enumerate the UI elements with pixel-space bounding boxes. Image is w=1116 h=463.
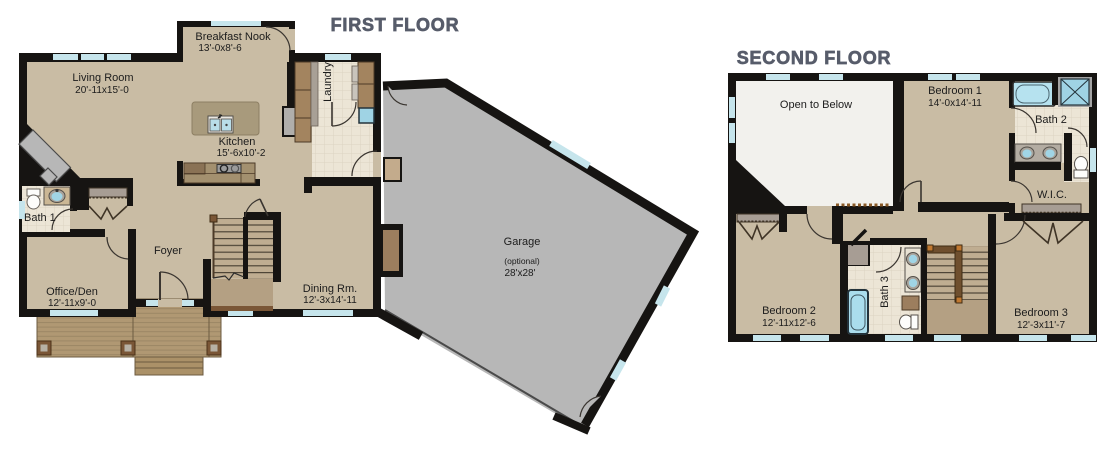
svg-text:Foyer: Foyer xyxy=(154,245,182,257)
svg-text:Garage: Garage xyxy=(504,236,541,248)
svg-text:Bath 3: Bath 3 xyxy=(879,276,891,308)
svg-text:12'-3x14'-11: 12'-3x14'-11 xyxy=(303,295,357,306)
svg-text:Bath 1: Bath 1 xyxy=(24,212,56,224)
svg-text:13'-0x8'-6: 13'-0x8'-6 xyxy=(198,43,242,54)
svg-text:(optional): (optional) xyxy=(504,256,540,266)
svg-text:Dining Rm.: Dining Rm. xyxy=(303,283,357,295)
svg-text:15'-6x10'-2: 15'-6x10'-2 xyxy=(217,148,266,159)
svg-text:Kitchen: Kitchen xyxy=(219,136,256,148)
svg-text:12'-3x11'-7: 12'-3x11'-7 xyxy=(1017,320,1066,331)
svg-text:SECOND FLOOR: SECOND FLOOR xyxy=(737,48,892,68)
svg-text:FIRST FLOOR: FIRST FLOOR xyxy=(331,15,460,35)
svg-text:Open to Below: Open to Below xyxy=(780,99,852,111)
svg-text:Breakfast Nook: Breakfast Nook xyxy=(195,31,271,43)
svg-text:Bedroom 1: Bedroom 1 xyxy=(928,85,982,97)
svg-text:14'-0x14'-11: 14'-0x14'-11 xyxy=(928,98,982,109)
svg-text:Bedroom 3: Bedroom 3 xyxy=(1014,307,1068,319)
svg-text:28'x28': 28'x28' xyxy=(504,268,535,279)
svg-text:W.I.C.: W.I.C. xyxy=(1037,189,1067,201)
svg-text:Laundry: Laundry xyxy=(322,62,334,102)
svg-text:Bedroom 2: Bedroom 2 xyxy=(762,305,816,317)
svg-text:20'-11x15'-0: 20'-11x15'-0 xyxy=(75,85,129,96)
svg-text:12'-11x9'-0: 12'-11x9'-0 xyxy=(48,298,97,309)
svg-text:Office/Den: Office/Den xyxy=(46,286,98,298)
svg-text:Living Room: Living Room xyxy=(72,72,133,84)
svg-text:12'-11x12'-6: 12'-11x12'-6 xyxy=(762,318,816,329)
svg-text:Bath 2: Bath 2 xyxy=(1035,114,1067,126)
